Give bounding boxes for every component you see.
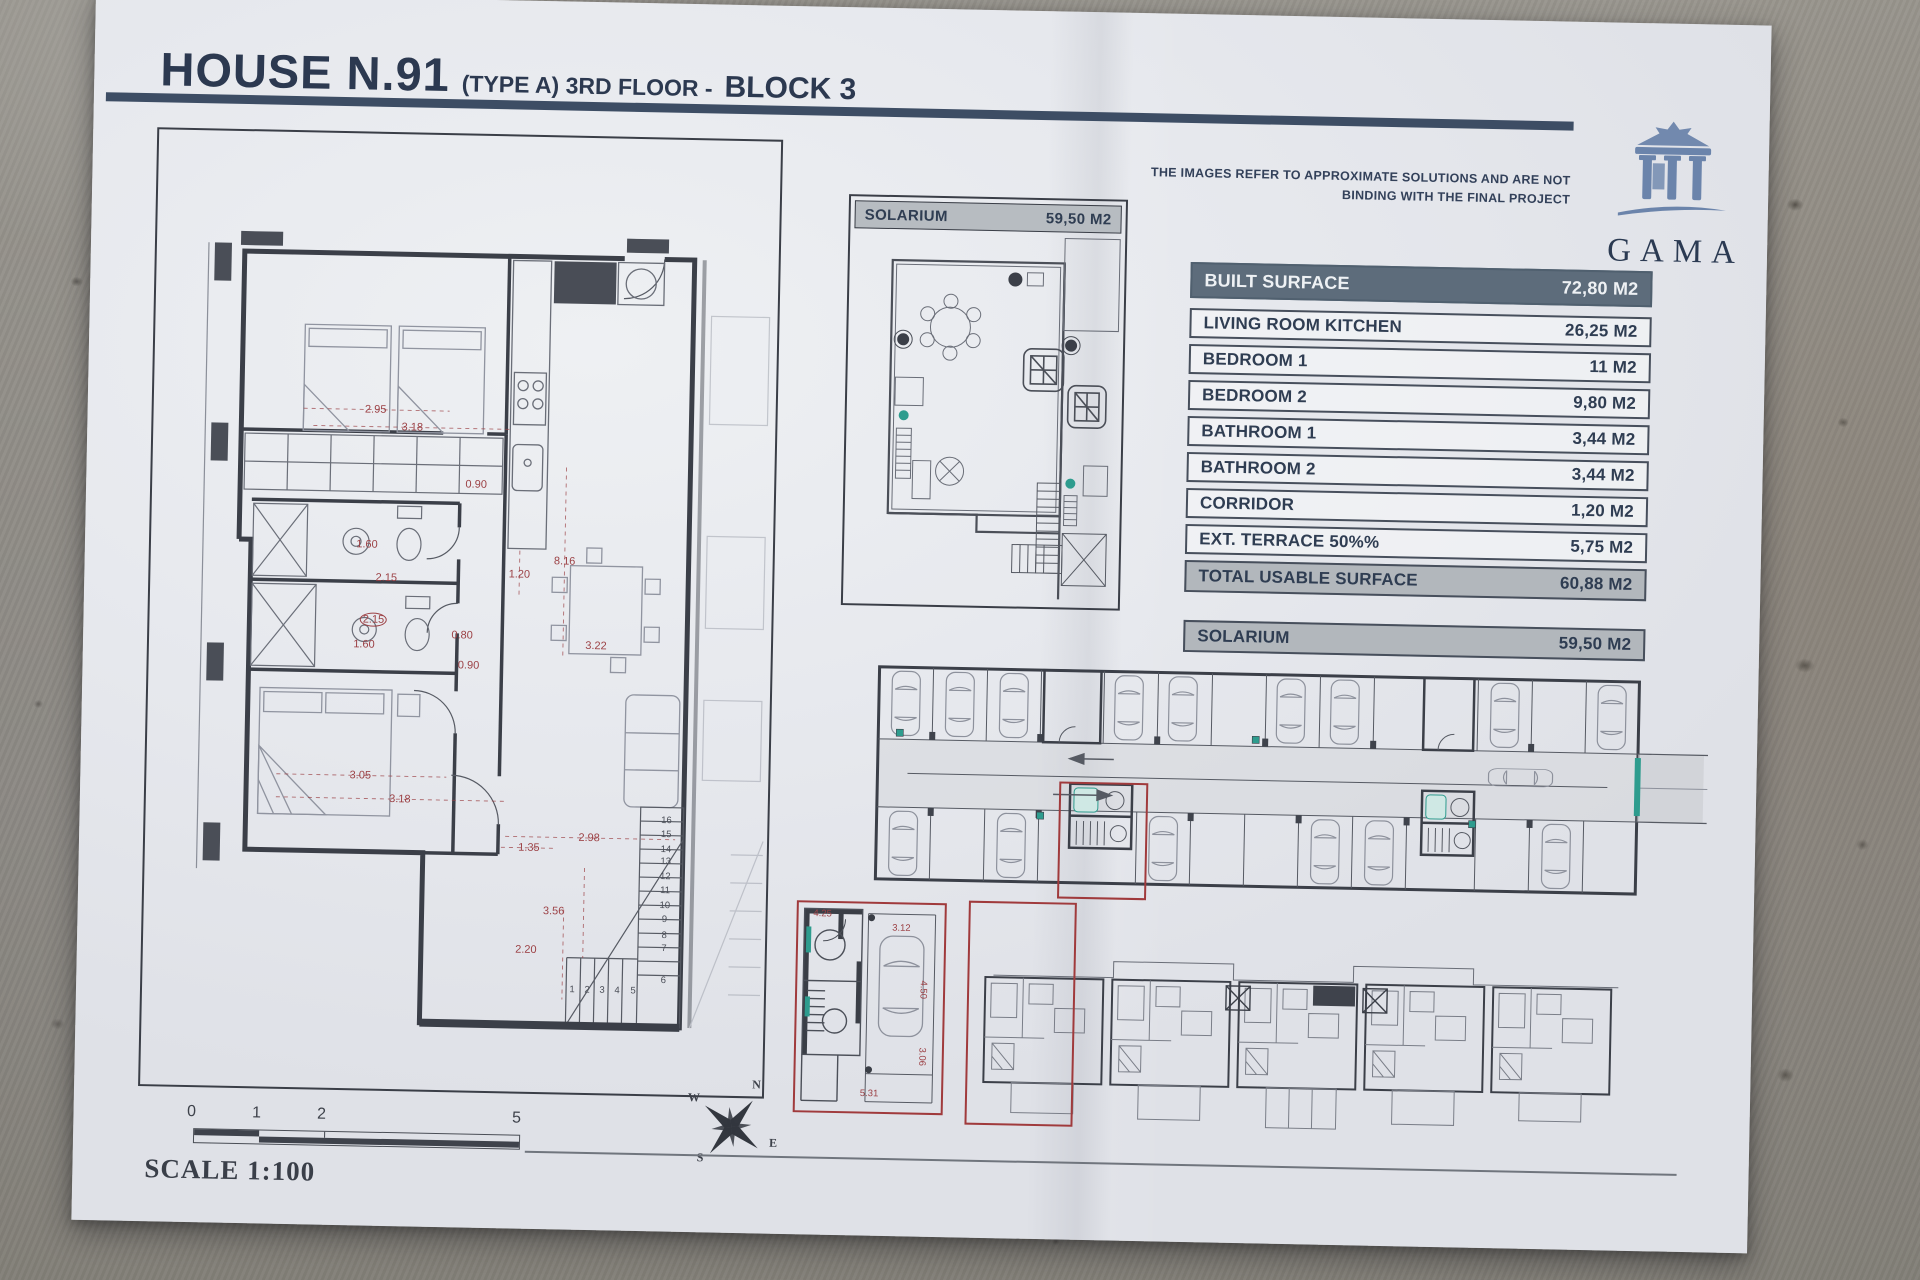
room-label: BATHROOM 1 (1201, 421, 1316, 443)
solarium-plan-label: SOLARIUM (865, 206, 949, 225)
dimension-label: 2 (584, 984, 590, 995)
surface-table-row: BEDROOM 111 M2 (1189, 344, 1652, 383)
title-house-number: HOUSE N.91 (160, 41, 451, 102)
dimension-label: 2 (317, 1106, 326, 1124)
building-block-plan (980, 937, 1629, 1145)
solarium-plan: SOLARIUM 59,50 M2 (841, 194, 1128, 611)
dimension-label: 9 (662, 914, 668, 925)
room-area-value: 11 M2 (1589, 357, 1637, 378)
dimension-label: 6 (661, 975, 667, 986)
built-surface-value: 72,80 M2 (1561, 277, 1638, 300)
surface-table: BUILT SURFACE 72,80 M2 LIVING ROOM KITCH… (1183, 262, 1653, 667)
dimension-label: 14 (661, 844, 672, 855)
total-usable-row: TOTAL USABLE SURFACE 60,88 M2 (1184, 560, 1647, 601)
solarium-row: SOLARIUM 59,50 M2 (1183, 620, 1646, 661)
room-label: LIVING ROOM KITCHEN (1203, 313, 1402, 337)
parking-plan-drawing (875, 667, 1711, 902)
gama-temple-icon (1612, 118, 1734, 232)
surface-table-row: CORRIDOR1,20 M2 (1186, 488, 1649, 527)
title-block: BLOCK 3 (724, 71, 856, 108)
stair-step-numbers: 12345161514131211109876 (140, 129, 781, 1096)
compass-west-label: W (688, 1090, 700, 1105)
dimension-label: 5 (630, 985, 636, 996)
compass-north-label: N (752, 1077, 761, 1092)
dimension-label: 3 (599, 985, 605, 996)
room-label: BATHROOM 2 (1200, 457, 1315, 479)
room-area-value: 5,75 M2 (1570, 537, 1633, 558)
room-area-value: 3,44 M2 (1572, 465, 1635, 486)
house-unit-highlight (964, 901, 1076, 1127)
room-label: BEDROOM 1 (1203, 349, 1308, 371)
dimension-label: 3.12 (892, 923, 911, 934)
room-area-value: 26,25 M2 (1565, 321, 1638, 342)
plan-sheet: HOUSE N.91 (TYPE A) 3RD FLOOR - BLOCK 3 … (71, 0, 1771, 1253)
surface-table-row: BEDROOM 29,80 M2 (1188, 380, 1651, 419)
dimension-label: 4.50 (917, 980, 928, 999)
surface-table-row: BATHROOM 13,44 M2 (1187, 416, 1650, 455)
dimension-label: 1 (252, 1104, 261, 1122)
room-label: EXT. TERRACE 50%% (1199, 529, 1379, 553)
dimension-label: 16 (661, 815, 672, 826)
gama-logo: GAMA (1589, 118, 1756, 272)
dimension-label: 1 (569, 984, 575, 995)
room-area-value: 9,80 M2 (1573, 393, 1636, 414)
room-label: BEDROOM 2 (1202, 385, 1307, 407)
surface-table-row: LIVING ROOM KITCHEN26,25 M2 (1189, 308, 1652, 347)
scale-bar: 0125 SCALE 1:100 (144, 1101, 626, 1211)
surface-table-row: BATHROOM 23,44 M2 (1186, 452, 1649, 491)
dimension-label: 3.06 (916, 1047, 927, 1066)
built-surface-label: BUILT SURFACE (1204, 270, 1350, 294)
room-area-value: 1,20 M2 (1571, 501, 1634, 522)
solarium-plan-header: SOLARIUM 59,50 M2 (854, 200, 1122, 233)
parking-core-highlight (1057, 781, 1148, 900)
dimension-label: 15 (661, 829, 672, 840)
solarium-label: SOLARIUM (1197, 626, 1290, 648)
parking-level-plan (875, 667, 1711, 902)
total-usable-label: TOTAL USABLE SURFACE (1198, 566, 1418, 590)
dimension-label: 0 (187, 1103, 196, 1121)
dimension-label: 5 (512, 1110, 521, 1128)
garage-dimensions: 4.253.124.503.065.31 (795, 902, 945, 1113)
dimension-label: 11 (660, 885, 670, 896)
room-label: CORRIDOR (1200, 493, 1295, 515)
solarium-plan-drawing (843, 229, 1122, 604)
dimension-label: 13 (660, 856, 671, 867)
compass-south-label: S (697, 1150, 704, 1165)
building-block-drawing (980, 937, 1629, 1145)
dimension-label: 4 (614, 985, 620, 996)
solarium-plan-area: 59,50 M2 (1046, 210, 1112, 228)
dimension-label: 5.31 (860, 1088, 879, 1099)
total-usable-value: 60,88 M2 (1560, 573, 1633, 594)
solarium-value: 59,50 M2 (1559, 633, 1632, 654)
room-area-value: 3,44 M2 (1572, 429, 1635, 450)
dimension-label: 12 (660, 871, 671, 882)
surface-table-rows: LIVING ROOM KITCHEN26,25 M2BEDROOM 111 M… (1185, 308, 1652, 563)
surface-table-row: EXT. TERRACE 50%%5,75 M2 (1185, 524, 1648, 563)
dimension-label: 8 (661, 930, 667, 941)
dimension-label: 4.25 (813, 908, 832, 919)
garage-detail-plan: 4.253.124.503.065.31 (793, 900, 947, 1115)
scale-label: SCALE 1:100 (144, 1153, 315, 1187)
title-type-floor: (TYPE A) 3RD FLOOR - (461, 70, 712, 102)
dimension-label: 10 (659, 900, 670, 911)
surface-table-header-row: BUILT SURFACE 72,80 M2 (1190, 262, 1653, 307)
compass-east-label: E (769, 1136, 777, 1151)
gama-logo-text: GAMA (1589, 232, 1754, 272)
main-floor-plan: 2.953.180.901.602.152.151.600.800.908.16… (138, 127, 783, 1098)
dimension-label: 7 (661, 943, 667, 954)
